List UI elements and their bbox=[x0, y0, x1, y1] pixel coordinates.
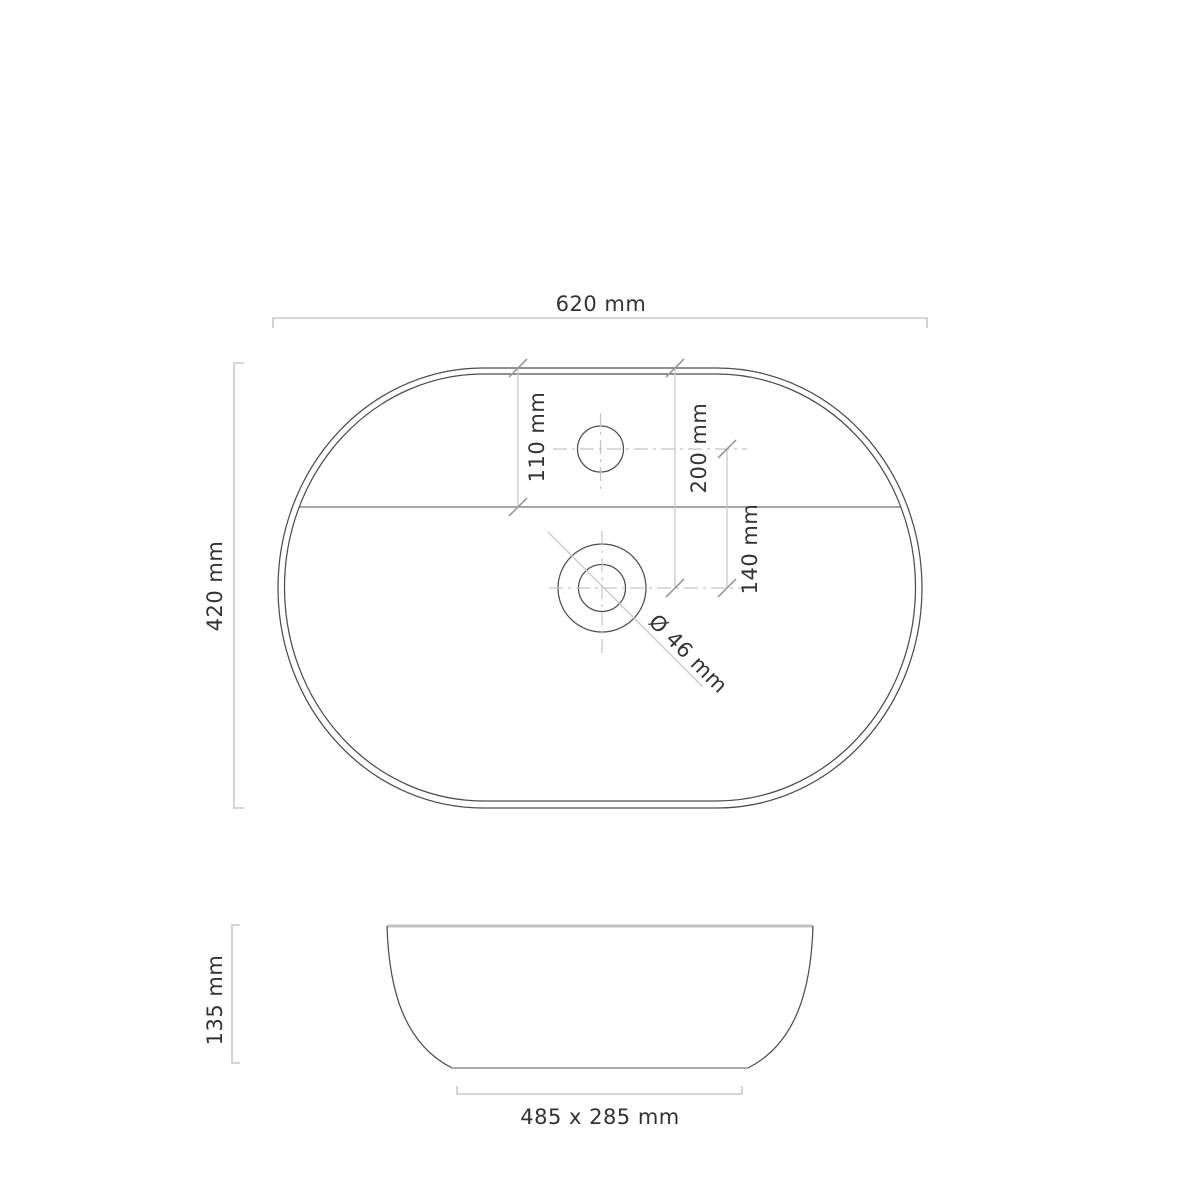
drain-diameter-leader-line bbox=[548, 532, 703, 687]
bowl-right-profile bbox=[748, 926, 813, 1068]
dim-label-tap-offset: 110 mm bbox=[525, 392, 549, 483]
dim-label-width: 620 mm bbox=[556, 292, 647, 316]
dim-overall-depth: 420 mm bbox=[203, 363, 244, 808]
basin-inner-outline bbox=[285, 374, 916, 801]
dim-label-depth: 420 mm bbox=[203, 541, 227, 632]
drawing-sheet: 110 mm 200 mm 140 mm Ø 46 mm 620 mm 420 … bbox=[0, 0, 1200, 1200]
dim-label-height: 135 mm bbox=[203, 955, 227, 1046]
dim-bracket-height bbox=[232, 925, 240, 1063]
dim-label-drain-offset: 200 mm bbox=[687, 403, 711, 494]
dim-bracket-depth bbox=[234, 363, 244, 808]
dim-base-size: 485 x 285 mm bbox=[457, 1086, 742, 1129]
top-view: 110 mm 200 mm 140 mm Ø 46 mm 620 mm 420 … bbox=[203, 292, 927, 808]
technical-drawing: 110 mm 200 mm 140 mm Ø 46 mm 620 mm 420 … bbox=[0, 0, 1200, 1200]
bowl-left-profile bbox=[387, 926, 452, 1068]
dim-label-drain-diameter: Ø 46 mm bbox=[644, 610, 732, 698]
dim-label-tap-to-drain: 140 mm bbox=[738, 504, 762, 595]
dim-side-height: 135 mm bbox=[203, 925, 240, 1063]
dim-overall-width: 620 mm bbox=[273, 292, 927, 328]
dim-bracket-base bbox=[457, 1086, 742, 1094]
dim-label-base: 485 x 285 mm bbox=[520, 1105, 680, 1129]
side-view: 135 mm 485 x 285 mm bbox=[203, 925, 813, 1129]
dim-bracket-width bbox=[273, 318, 927, 328]
